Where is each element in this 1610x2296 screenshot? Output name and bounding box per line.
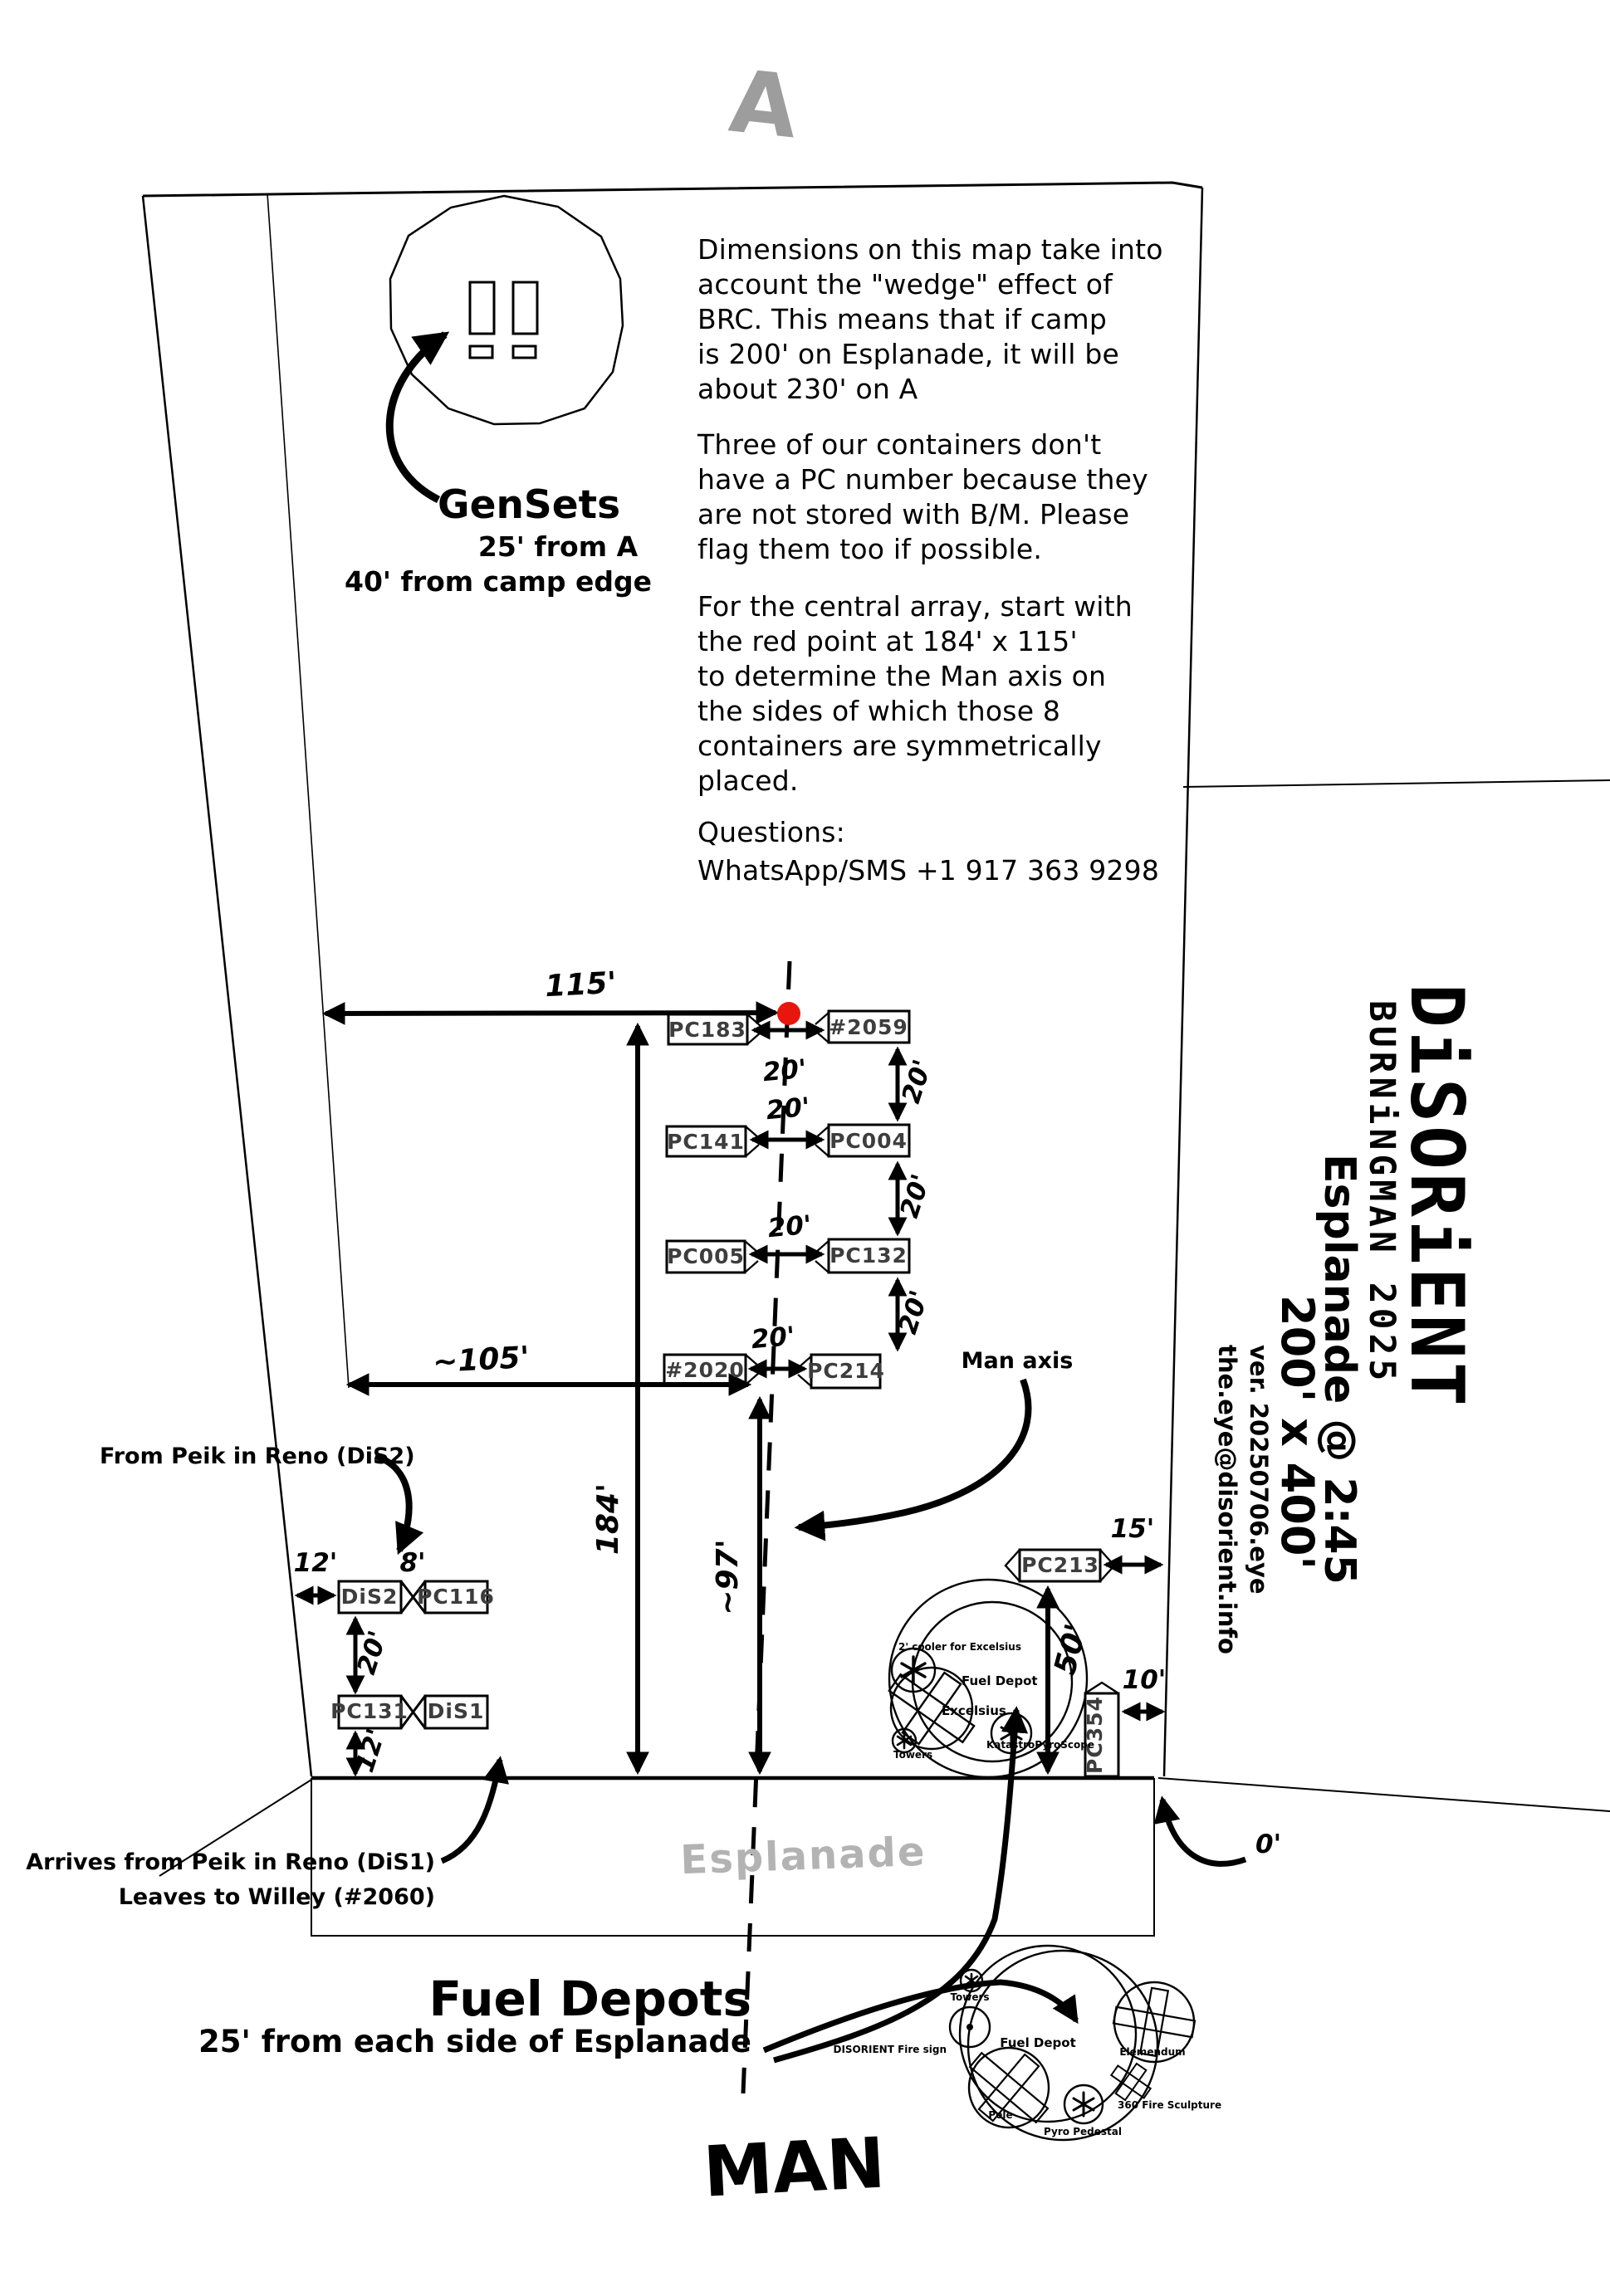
fire-sign-label: DISORIENT Fire sign	[833, 2044, 947, 2055]
dim-12b-label: 12'	[350, 1725, 392, 1776]
contact-line: WhatsApp/SMS +1 917 363 9298	[697, 854, 1159, 887]
fuel-depot-label: Fuel Depot	[962, 1673, 1038, 1688]
gensets-group: GenSets 25' from A 40' from camp edge	[345, 196, 652, 598]
gensets-note-2: 40' from camp edge	[345, 565, 652, 598]
note-line: containers are symmetrically	[697, 730, 1102, 762]
camp-top-edge	[143, 183, 1202, 196]
excelsius-label: Excelsius	[942, 1703, 1006, 1718]
container-label: PC183	[668, 1018, 746, 1042]
west-pairs: From Peik in Reno (DiS2) DiS2 PC116 PC13…	[100, 1444, 495, 1776]
arrive-line: Arrives from Peik in Reno (DiS1)	[26, 1849, 435, 1875]
container-label: DiS1	[428, 1699, 485, 1723]
upper-fuel-depot: 2' cooler for Excelsius Fuel Depot Excel…	[874, 1580, 1094, 1777]
from-peik-note: From Peik in Reno (DiS2)	[100, 1444, 415, 1469]
from-peik-arrow	[375, 1456, 409, 1551]
esplanade-street-label: Esplanade	[680, 1829, 927, 1883]
genset-aux-1	[470, 346, 492, 358]
man-axis-label: Man axis	[962, 1348, 1074, 1374]
container-label: DiS2	[341, 1585, 399, 1609]
dim-10-label: 10'	[1123, 1665, 1167, 1695]
box-notches	[1085, 1683, 1118, 1693]
fuel-depots-title: Fuel Depots	[428, 1971, 751, 2027]
central-array: PC183 #2059 20' PC141 PC004 20' PC005 PC…	[664, 1011, 938, 1388]
gap-label: 20'	[761, 1054, 808, 1087]
gap-label: 20'	[766, 1210, 813, 1243]
leave-line: Leaves to Willey (#2060)	[119, 1884, 435, 1910]
pyro-label: Pyro Pedestal	[1044, 2126, 1122, 2137]
camp-map-page: A GenSets 25' from A 40' from camp edge …	[0, 0, 1610, 2296]
man-label: MAN	[702, 2122, 888, 2212]
note-line: BRC. This means that if camp	[697, 303, 1107, 335]
sculpture-label: 360 Fire Sculpture	[1118, 2099, 1221, 2111]
dim-0-label: 0'	[1255, 1829, 1281, 1859]
note-line: is 200' on Esplanade, it will be	[697, 338, 1119, 370]
arrivals-note: Arrives from Peik in Reno (DiS1) Leaves …	[26, 1760, 500, 1910]
dim-15-label: 15'	[1111, 1514, 1155, 1544]
container-label: PC213	[1021, 1553, 1099, 1577]
brand-size: 200' x 400'	[1271, 1295, 1324, 1570]
lower-fuel-depot: Fuel Depot Towers DISORIENT Fire sign Pe…	[833, 1946, 1221, 2142]
camp-map-drawing: A GenSets 25' from A 40' from camp edge …	[0, 0, 1610, 2296]
box-notches	[745, 1241, 829, 1273]
camp-boundary	[143, 183, 1610, 1776]
note-line: about 230' on A	[697, 373, 918, 405]
camp-right-edge	[1164, 188, 1202, 1776]
man-axis-arrow	[799, 1380, 1028, 1527]
street-a-label: A	[725, 51, 802, 159]
gap-label: 20'	[894, 1170, 937, 1221]
gap-label: 20'	[896, 1056, 938, 1106]
container-label: PC214	[807, 1359, 885, 1383]
note-line: Dimensions on this map take into	[697, 233, 1163, 266]
red-start-point	[777, 1002, 800, 1025]
note-line: For the central array, start with	[697, 590, 1133, 623]
container-label: PC132	[829, 1243, 908, 1268]
extension-line	[267, 193, 349, 1388]
fire-sign-dot	[966, 2024, 973, 2030]
dim-12-label: 12'	[294, 1548, 338, 1578]
container-label: PC004	[829, 1129, 908, 1153]
notes-block: Dimensions on this map take into account…	[697, 233, 1163, 887]
asterisk-icon	[1074, 2093, 1094, 2116]
note-line: flag them too if possible.	[697, 533, 1042, 565]
elem-label: Elemendum	[1119, 2046, 1185, 2058]
gap-label: 20'	[750, 1321, 796, 1355]
fuel-arrow-upper	[774, 1710, 1016, 2060]
asterisk-icon	[902, 1657, 925, 1683]
dim-115-label: 115'	[544, 966, 617, 1004]
kata-label: KatastroPyroScope	[986, 1739, 1094, 1751]
container-label: #2059	[829, 1015, 908, 1039]
dim-184-label: 184'	[591, 1483, 625, 1555]
note-line: Three of our containers don't	[697, 428, 1101, 461]
arrive-arrow	[442, 1760, 500, 1861]
fuel-depot-label: Fuel Depot	[1000, 2035, 1076, 2050]
genset-unit-1	[470, 282, 494, 334]
gensets-arrow	[389, 335, 445, 500]
note-line: account the "wedge" effect of	[697, 268, 1113, 300]
brand-email: the.eye@disorient.info	[1213, 1345, 1241, 1654]
container-label: PC005	[667, 1244, 745, 1268]
questions-label: Questions:	[697, 816, 845, 848]
gap-label: 20'	[765, 1092, 811, 1126]
towers-label: Towers	[893, 1749, 932, 1761]
note-line: placed.	[697, 765, 799, 797]
container-label: PC354	[1083, 1696, 1107, 1774]
brand-column: DiSORiENT BURNiNGMAN 2025 Esplanade @ 2:…	[1213, 984, 1480, 1654]
pele-label: Pele	[988, 2109, 1012, 2121]
neighbor-line	[1183, 780, 1610, 787]
container-label: PC131	[330, 1699, 409, 1723]
cooler-label: 2' cooler for Excelsius	[898, 1641, 1021, 1653]
dim-97-label: ~97'	[711, 1539, 745, 1615]
container-label: PC116	[417, 1585, 495, 1609]
asterisk-icon	[898, 1733, 911, 1748]
dim-105-label: ~105'	[432, 1341, 530, 1380]
container-label: #2020	[665, 1358, 745, 1382]
dim-8-label: 8'	[399, 1548, 425, 1578]
container-label: PC141	[667, 1130, 745, 1154]
brand-title: DiSORiENT	[1394, 984, 1480, 1409]
brand-version: ver. 20250706.eye	[1245, 1345, 1273, 1595]
note-line: are not stored with B/M. Please	[697, 498, 1129, 530]
genset-unit-2	[513, 282, 537, 334]
dim-0-arrow	[1162, 1800, 1245, 1864]
camp-left-edge	[143, 196, 311, 1776]
note-line: to determine the Man axis on	[697, 660, 1106, 692]
note-line: the sides of which those 8	[697, 695, 1060, 727]
fuel-depots-note: 25' from each side of Esplanade	[198, 2024, 751, 2059]
note-line: the red point at 184' x 115'	[697, 625, 1078, 657]
genset-aux-2	[513, 346, 536, 358]
gensets-title: GenSets	[438, 482, 620, 528]
gensets-note-1: 25' from A	[478, 530, 639, 563]
esplanade-right-extension	[1158, 1778, 1610, 1811]
gensets-circle	[390, 196, 623, 424]
brand-subtitle: BURNiNGMAN 2025	[1361, 1000, 1402, 1385]
dim-20-label: 20'	[351, 1627, 394, 1678]
towers-label: Towers	[950, 1991, 989, 2003]
note-line: have a PC number because they	[697, 463, 1148, 496]
